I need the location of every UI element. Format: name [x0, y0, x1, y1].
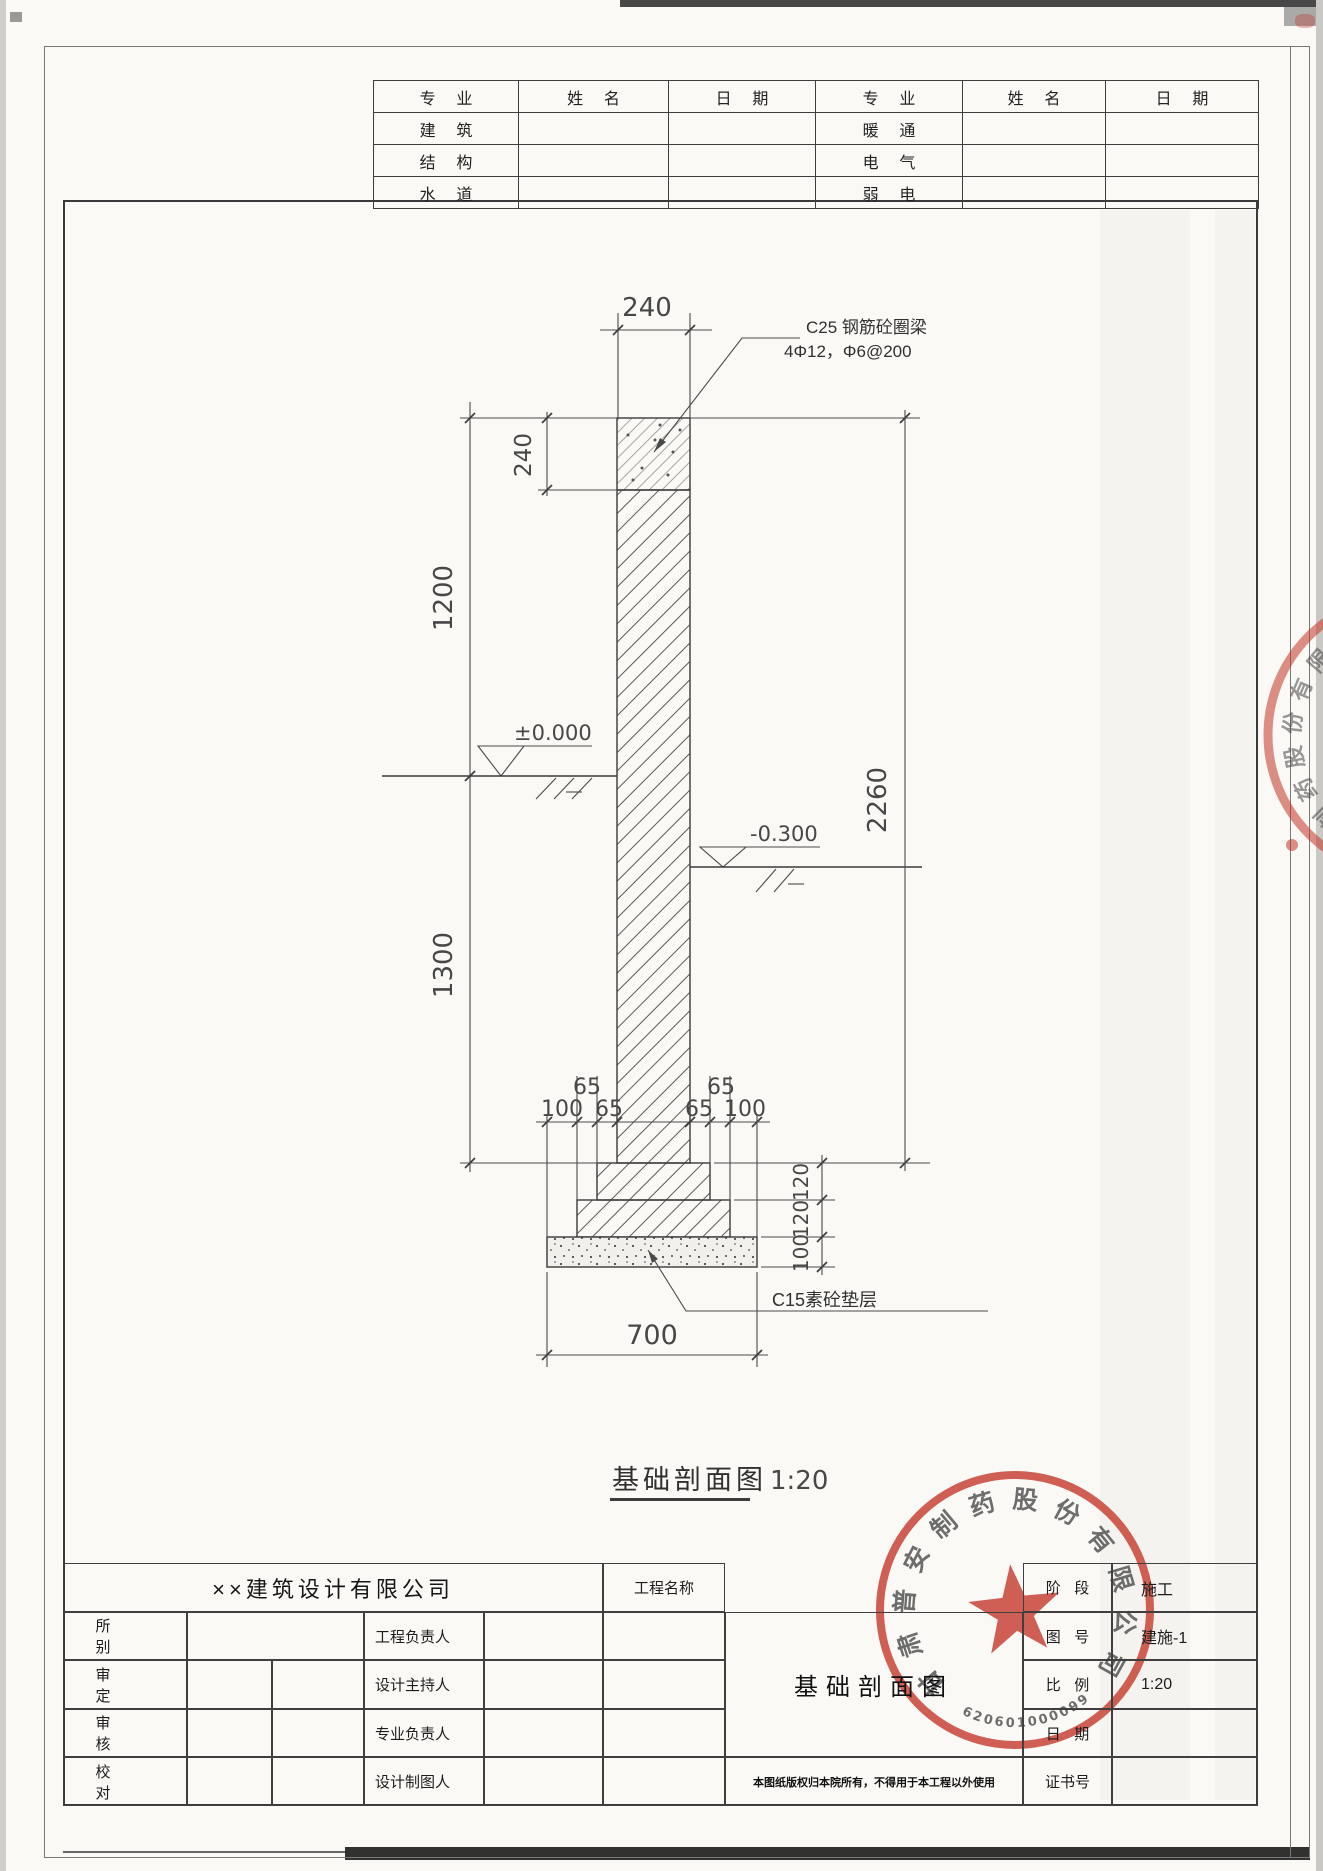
dim-text-below-ground: 1300 — [429, 932, 459, 998]
copyright-note: 本图纸版权归本院所有，不得用于本工程以外使用 — [725, 1757, 1023, 1806]
wall-section — [547, 418, 757, 1267]
dim-text-left-inner: 65 — [595, 1097, 623, 1122]
dim-text-cushion-height: 100 — [789, 1234, 813, 1272]
label-draftsman: 设计制图人 — [364, 1757, 484, 1806]
empty-cell — [272, 1709, 364, 1757]
label-checked: 校对 — [63, 1757, 187, 1806]
stamp-char: 有 — [1082, 1521, 1120, 1559]
design-company-name: ××建筑设计有限公司 — [63, 1563, 603, 1612]
value-stage: 施工 — [1112, 1563, 1258, 1612]
dim-text-right-inner: 65 — [685, 1097, 713, 1122]
empty-cell — [484, 1660, 603, 1709]
caption-underline — [610, 1498, 750, 1501]
stamp-char: 份 — [1281, 710, 1308, 735]
label-date: 日期 — [1023, 1709, 1112, 1757]
value-scale: 1:20 — [1112, 1660, 1258, 1709]
value-certificate-number — [1112, 1757, 1258, 1806]
dim-text-step2-height: 120 — [789, 1200, 813, 1238]
ring-beam — [617, 418, 690, 490]
dim-text-base-width: 700 — [626, 1320, 678, 1351]
stamp-char: 安 — [898, 1542, 935, 1578]
dim-text-overall-height: 2260 — [863, 767, 893, 833]
value-drawing-number: 建施-1 — [1112, 1612, 1258, 1660]
stamp-char: 普 — [889, 1588, 920, 1615]
level-minus300-text: -0.300 — [750, 822, 818, 846]
stamp-char: 份 — [1049, 1494, 1085, 1531]
dim-text-left-outer: 100 — [541, 1097, 583, 1122]
stamp-char: 限 — [1304, 645, 1323, 678]
empty-cell — [484, 1612, 603, 1660]
empty-cell — [603, 1660, 725, 1709]
caption-scale: 1:20 — [770, 1466, 828, 1496]
level-zero-text: ±0.000 — [514, 721, 592, 745]
dim-left-chain: 1200 1300 240 — [429, 402, 617, 1172]
dim-base-width: 700 — [536, 1272, 768, 1367]
empty-cell — [187, 1612, 364, 1660]
stamp-ink-blob — [1286, 839, 1298, 851]
caption-title: 基础剖面图 — [612, 1465, 767, 1495]
stamp-char: 有 — [1286, 675, 1319, 705]
ring-beam-label: C25 钢筋砼圈梁 — [806, 318, 927, 337]
brick-wall — [617, 490, 690, 1163]
label-stage: 阶段 — [1023, 1563, 1112, 1612]
partial-edge-stamp: 制药股份有限 — [1268, 595, 1323, 875]
scanned-drawing-sheet: 专业 姓名 日期 专业 姓名 日期 建筑 暖通 结构 电气 水道 弱电 — [0, 0, 1323, 1871]
ring-beam-rebar-label: 4Φ12，Φ6@200 — [784, 342, 912, 361]
level-triangle-icon — [700, 847, 746, 867]
empty-cell — [272, 1757, 364, 1806]
sheet-drawing-title: 基础剖面图 — [725, 1612, 1023, 1757]
label-department: 所别 — [63, 1612, 187, 1660]
ring-beam-callout: C25 钢筋砼圈梁 4Φ12，Φ6@200 — [654, 318, 927, 452]
drawing-caption: 基础剖面图 1:20 — [610, 1465, 828, 1501]
stamp-char: 药 — [1291, 773, 1323, 804]
footing-step-1 — [597, 1163, 710, 1200]
label-design-director: 设计主持人 — [364, 1660, 484, 1709]
stamp-char: 股 — [1012, 1484, 1040, 1515]
dim-text-above-ground: 1200 — [429, 565, 459, 631]
dim-text-ring-beam-height: 240 — [511, 433, 537, 477]
empty-cell — [603, 1612, 725, 1660]
label-approved: 审定 — [63, 1660, 187, 1709]
dim-text-right-outer: 100 — [724, 1097, 766, 1122]
value-date — [1112, 1709, 1258, 1757]
stamp-char: 药 — [966, 1487, 999, 1522]
empty-cell — [484, 1709, 603, 1757]
label-drawing-number: 图号 — [1023, 1612, 1112, 1660]
label-discipline-lead: 专业负责人 — [364, 1709, 484, 1757]
stamp-char: 股 — [1281, 744, 1310, 770]
dim-text-wall-width: 240 — [622, 293, 672, 323]
empty-cell — [272, 1660, 364, 1709]
cushion-label: C15素砼垫层 — [772, 1290, 877, 1310]
label-certificate-number: 证书号 — [1023, 1757, 1112, 1806]
empty-cell — [187, 1757, 272, 1806]
empty-cell — [603, 1709, 725, 1757]
level-zero-marker: ±0.000 — [382, 721, 617, 799]
footing-step-2 — [577, 1200, 730, 1237]
empty-cell — [187, 1709, 272, 1757]
empty-cell — [484, 1757, 603, 1806]
label-project-lead: 工程负责人 — [364, 1612, 484, 1660]
label-reviewed: 审核 — [63, 1709, 187, 1757]
label-scale: 比例 — [1023, 1660, 1112, 1709]
stamp-char: 制 — [925, 1506, 963, 1544]
dim-text-step1-height: 120 — [789, 1163, 813, 1201]
empty-cell — [603, 1757, 725, 1806]
empty-cell — [187, 1660, 272, 1709]
project-name-label: 工程名称 — [603, 1563, 725, 1612]
stamp-char: 制 — [1310, 799, 1323, 832]
level-triangle-icon — [478, 746, 524, 776]
dim-overall-height: 2260 — [690, 410, 920, 1171]
